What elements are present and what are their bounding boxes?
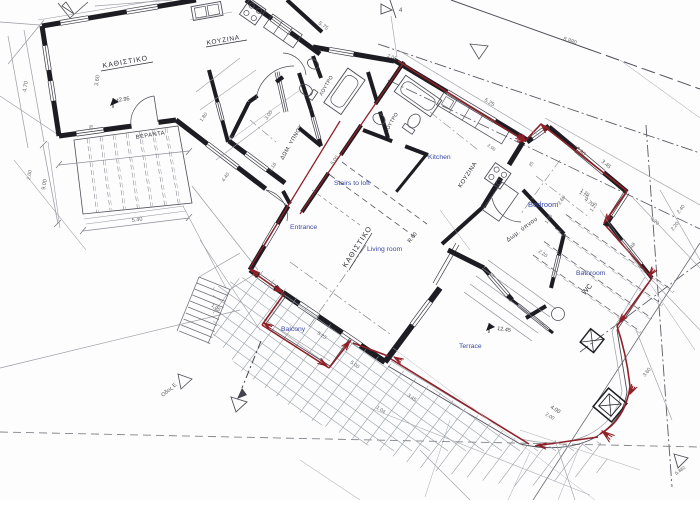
svg-text:Stairs to loft: Stairs to loft: [334, 180, 370, 187]
svg-text:Bathroom: Bathroom: [576, 270, 606, 277]
svg-text:Bedroom: Bedroom: [528, 200, 558, 209]
svg-text:Entrance: Entrance: [290, 224, 317, 231]
svg-text:Terrace: Terrace: [459, 343, 482, 350]
svg-text:Living room: Living room: [367, 246, 402, 253]
svg-text:Balcony: Balcony: [281, 326, 306, 333]
svg-text:Kitchen: Kitchen: [428, 154, 451, 161]
